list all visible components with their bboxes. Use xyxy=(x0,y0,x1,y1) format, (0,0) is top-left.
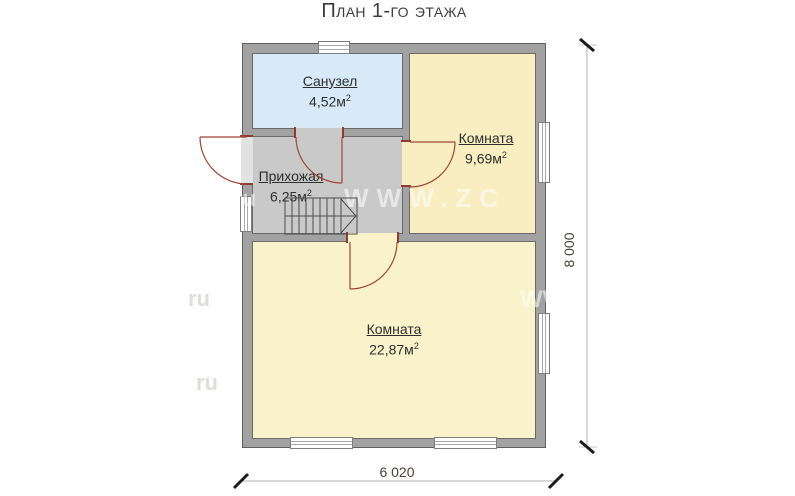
dimension-height-label: 8 000 xyxy=(561,232,577,267)
window-right-upper xyxy=(538,122,550,183)
window-top xyxy=(318,41,350,54)
room-name: Санузел xyxy=(303,73,358,90)
door-jamb xyxy=(240,135,253,137)
door-opening-entrance xyxy=(241,137,253,183)
room-area: 4,52м2 xyxy=(303,90,358,111)
dimension-tick xyxy=(549,474,563,488)
dimension-width: 6 020 xyxy=(234,464,563,488)
room-area: 6,25м2 xyxy=(259,185,324,206)
dimension-tick xyxy=(234,474,248,488)
door-jamb xyxy=(240,183,253,185)
door-opening-room-bottom xyxy=(348,233,397,242)
door-jamb xyxy=(342,127,344,138)
door-jamb xyxy=(401,185,411,187)
room-label-hallway: Прихожая 6,25м2 xyxy=(259,168,324,206)
room-name: Прихожая xyxy=(259,168,324,185)
room-area: 22,87м2 xyxy=(367,338,422,359)
window-bottom-right xyxy=(434,437,497,449)
watermark-fragment: ru xyxy=(188,286,210,312)
room-label-room-bottom: Комната 22,87м2 xyxy=(367,321,422,359)
dimension-tick xyxy=(580,39,594,51)
room-name: Комната xyxy=(367,321,422,338)
watermark-fragment: W xyxy=(552,371,575,399)
window-left xyxy=(240,196,252,232)
window-bottom-left xyxy=(290,437,353,449)
floor-plan-page: План 1-го этажа ru WWW.ZС ru WW ru W Сан… xyxy=(0,0,795,496)
room-area: 9,69м2 xyxy=(459,147,514,168)
room-label-room-top: Комната 9,69м2 xyxy=(459,130,514,168)
page-title: План 1-го этажа xyxy=(212,0,576,23)
door-jamb xyxy=(346,232,348,243)
room-label-bathroom: Санузел 4,52м2 xyxy=(303,73,358,111)
dimension-tick xyxy=(580,441,594,453)
watermark-fragment: ru xyxy=(196,370,218,396)
room-name: Комната xyxy=(459,130,514,147)
door-jamb xyxy=(397,232,399,243)
door-opening-room-top xyxy=(402,142,410,185)
door-opening-bathroom xyxy=(296,128,342,137)
dimension-width-label: 6 020 xyxy=(379,464,414,480)
dimension-height: 8 000 xyxy=(561,39,597,453)
door-jamb xyxy=(401,140,411,142)
door-jamb xyxy=(294,127,296,138)
window-right-lower xyxy=(538,313,550,374)
door-arc-entrance xyxy=(200,137,247,184)
